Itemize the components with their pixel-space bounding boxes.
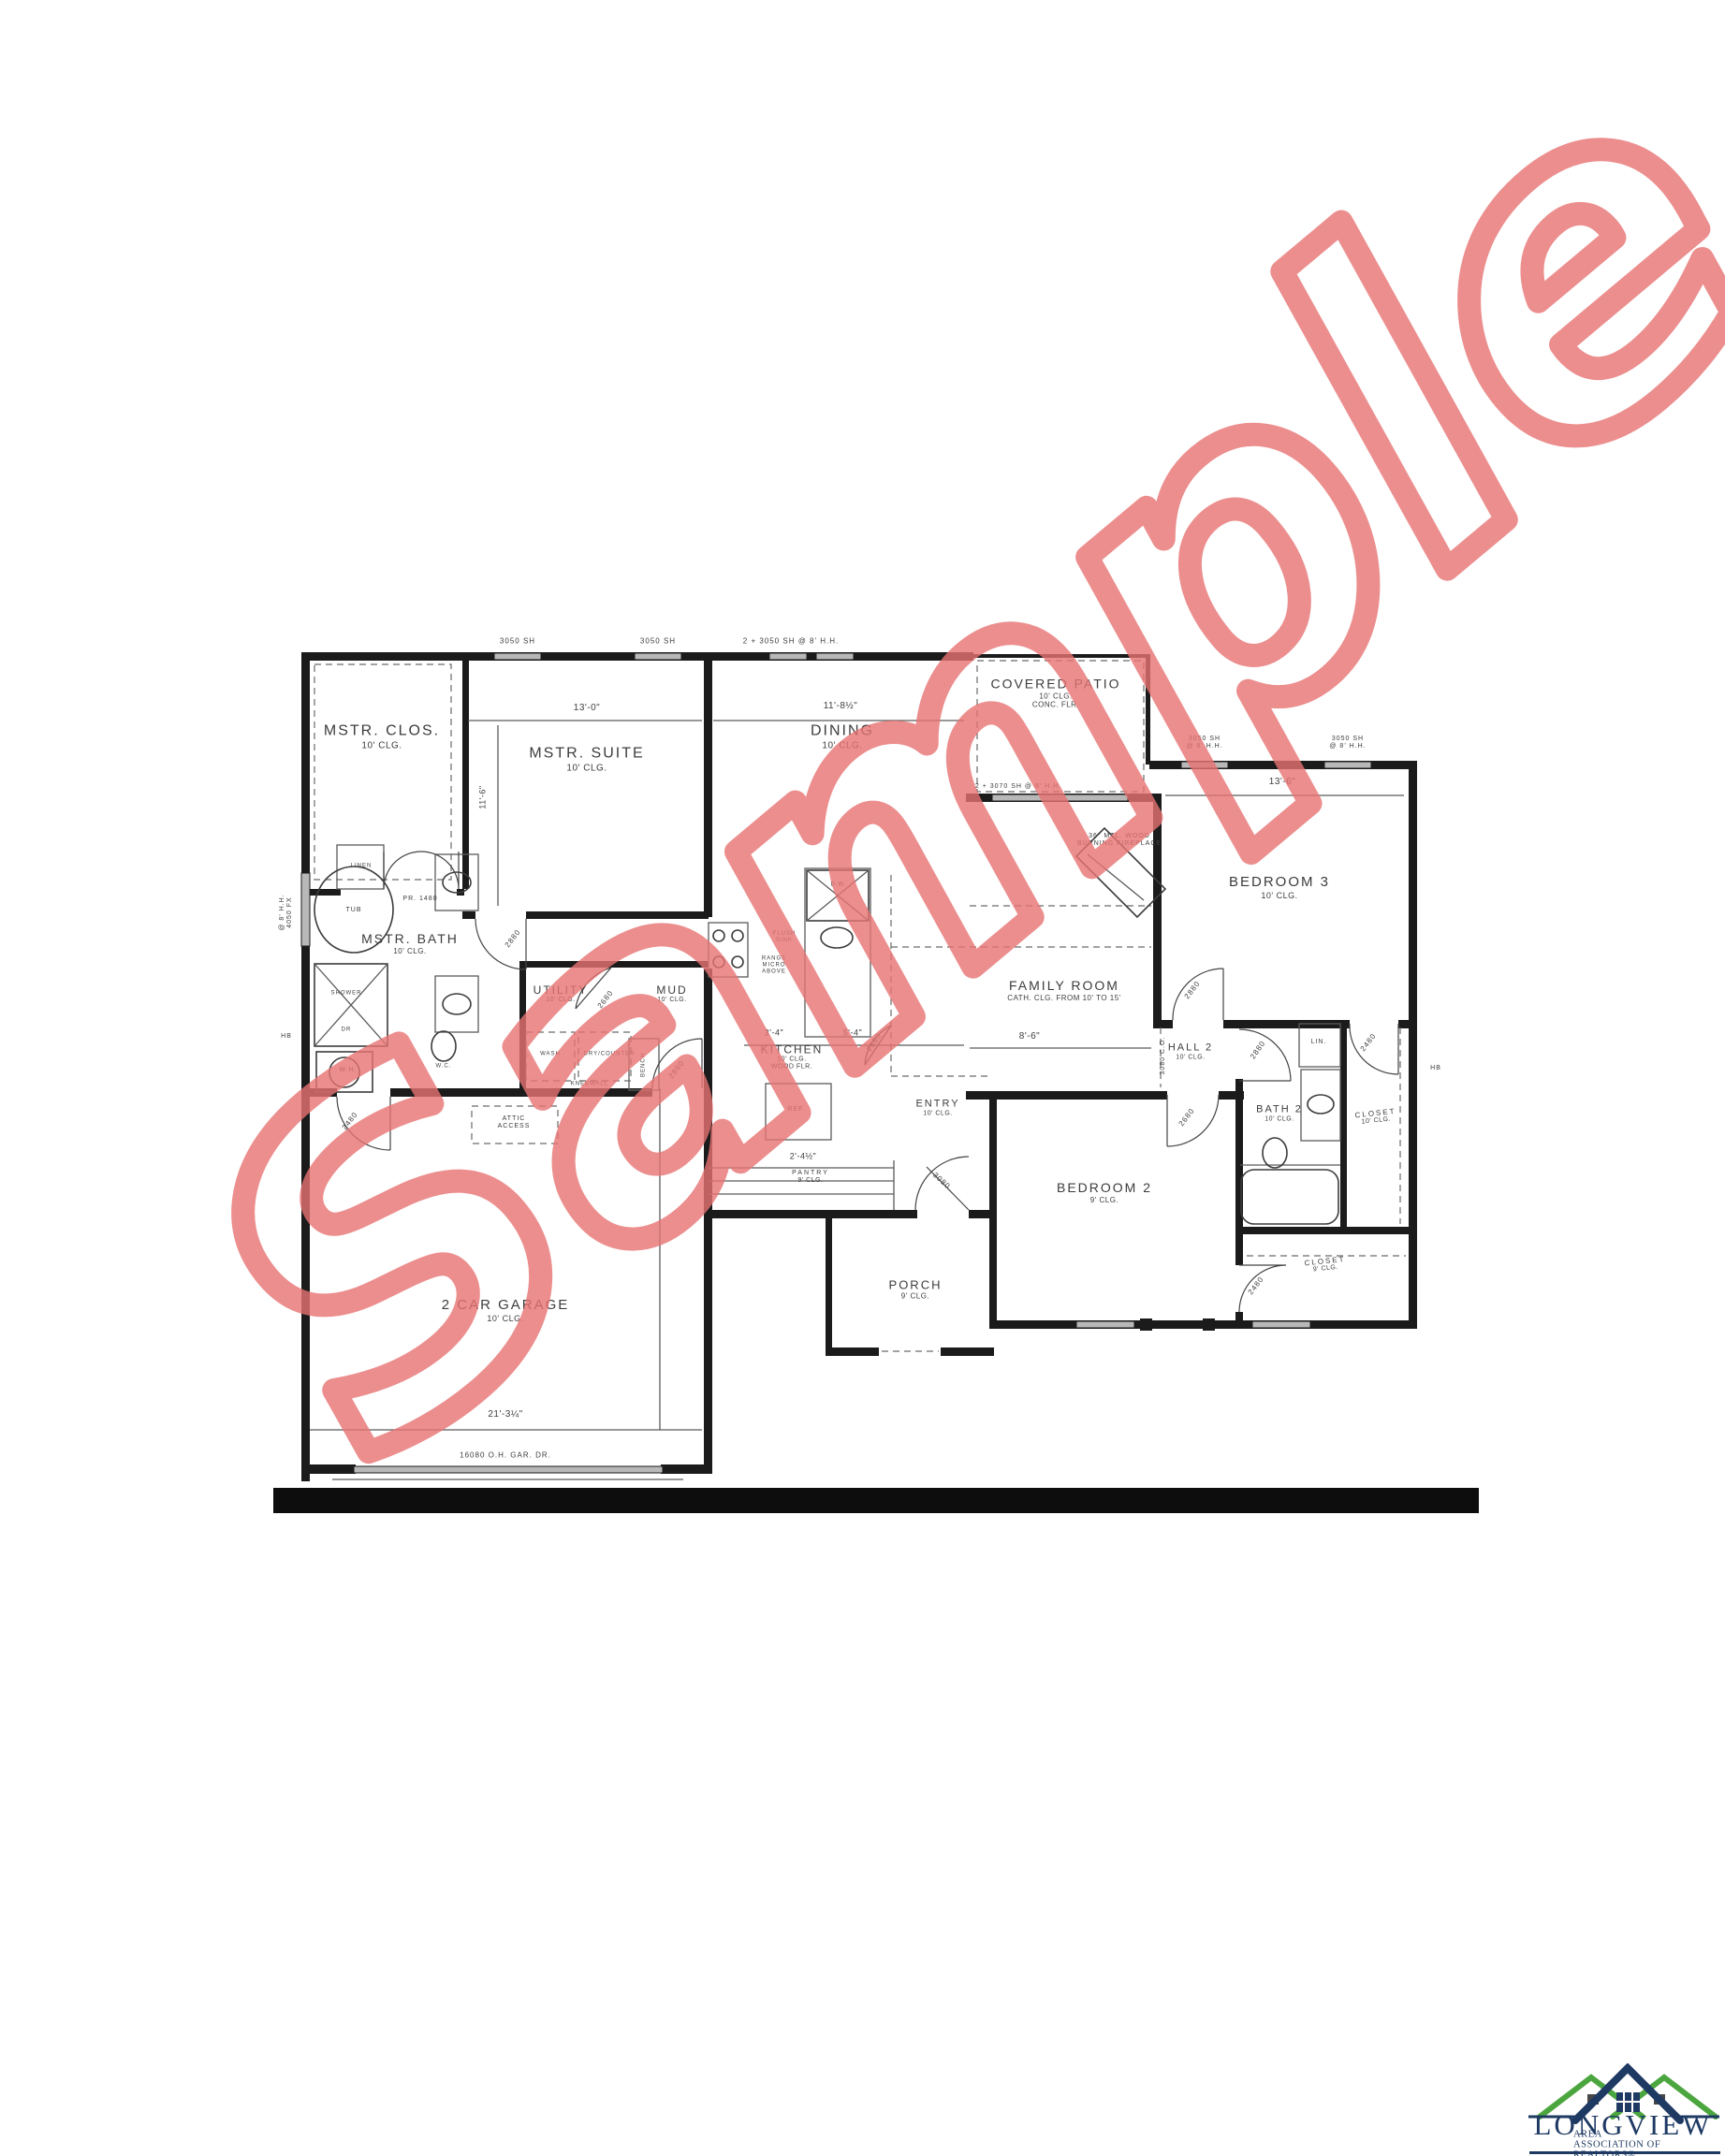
room-entry: ENTRY10' CLG. xyxy=(915,1098,959,1117)
room-mstr-clos: MSTR. CLOS.10' CLG. xyxy=(324,723,440,752)
washer: WASH xyxy=(540,1051,561,1057)
room-porch-sub: 9' CLG. xyxy=(889,1292,943,1301)
fireplace: 36" MTL. WOODBURNING FIREPLACE xyxy=(1077,833,1162,849)
window-dining-line: 2 + 3050 SH @ 8' H.H. xyxy=(743,636,839,645)
dim-pantry: 2'-4½" xyxy=(790,1152,816,1162)
room-utility-sub: 10' CLG. xyxy=(534,997,589,1004)
linen-bath2-line: LIN. xyxy=(1311,1039,1327,1046)
room-covered-patio-sub: CONC. FLR. xyxy=(990,700,1120,708)
room-covered-patio-sub: 10' CLG. xyxy=(990,692,1120,700)
range-micro: RANGEMICROABOVE xyxy=(762,955,786,975)
kneewall: KNEEWALL xyxy=(571,1081,608,1087)
attic-access: ATTICACCESS xyxy=(498,1115,531,1131)
shower-drain-line: DR xyxy=(342,1027,352,1033)
realtor-association-logo: LONGVIEW AREA ASSOCIATION OF REALTORS® xyxy=(1524,2063,1722,2156)
room-pantry-label: PANTRY xyxy=(792,1170,829,1177)
attic-access-line: ATTIC xyxy=(498,1115,531,1123)
window-mstr-bath-line: 4050 FX xyxy=(286,894,294,930)
room-garage-label: 2 CAR GARAGE xyxy=(442,1297,570,1314)
dryer-counter-line: DRY/COUNTER xyxy=(584,1051,636,1057)
window-bed3-b-line: @ 8' H.H. xyxy=(1329,743,1366,750)
dim-kitchen-b: 5'-4" xyxy=(843,1028,862,1039)
window-family: 2 + 3070 SH @ 8' H.H. xyxy=(975,783,1061,791)
room-dining-sub: 10' CLG. xyxy=(811,741,874,752)
shower: SHOWER xyxy=(331,990,362,997)
flush-sink-line: FLUSH xyxy=(773,931,797,938)
hose-bib-left: HB xyxy=(281,1033,292,1041)
room-mstr-suite-sub: 10' CLG. xyxy=(529,764,644,775)
room-bath-2: BATH 210' CLG. xyxy=(1256,1103,1303,1123)
room-mstr-bath: MSTR. BATH10' CLG. xyxy=(361,931,459,955)
room-mud-sub: 10' CLG. xyxy=(656,997,687,1004)
window-bed3-a-line: @ 8' H.H. xyxy=(1186,743,1222,750)
room-mstr-bath-sub: 10' CLG. xyxy=(361,947,459,955)
garage-door-label-line: 16080 O.H. GAR. DR. xyxy=(460,1450,551,1459)
room-bedroom-3-label: BEDROOM 3 xyxy=(1229,874,1330,891)
room-kitchen: KITCHEN10' CLG.WOOD FLR. xyxy=(761,1043,824,1072)
room-porch: PORCH9' CLG. xyxy=(889,1278,943,1302)
room-mud-label: MUD xyxy=(656,983,687,997)
hose-bib-right-line: HB xyxy=(1430,1065,1441,1072)
window-bed3-a: 3050 SH@ 8' H.H. xyxy=(1186,736,1222,751)
hose-bib-right: HB xyxy=(1430,1065,1441,1072)
room-mstr-suite-label: MSTR. SUITE xyxy=(529,746,644,764)
room-family: FAMILY ROOMCATH. CLG. FROM 10' TO 15' xyxy=(1007,978,1120,1002)
window-3050-suite-a-line: 3050 SH xyxy=(500,636,535,645)
room-dining: DINING10' CLG. xyxy=(811,723,874,752)
room-bedroom-2-label: BEDROOM 2 xyxy=(1057,1180,1152,1196)
room-dining-label: DINING xyxy=(811,723,874,741)
dim-family: 8'-6" xyxy=(1019,1031,1040,1042)
dim-mstr-suite: 13'-0" xyxy=(574,703,600,714)
room-kitchen-label: KITCHEN xyxy=(761,1043,824,1056)
room-utility: UTILITY10' CLG. xyxy=(534,983,589,1004)
water-heater: W.H. xyxy=(339,1067,357,1074)
room-mstr-clos-label: MSTR. CLOS. xyxy=(324,723,440,741)
water-closet-line: W.C. xyxy=(436,1063,452,1070)
fireplace-line: BURNING FIREPLACE xyxy=(1077,840,1162,848)
room-covered-patio: COVERED PATIO10' CLG.CONC. FLR. xyxy=(990,676,1120,708)
window-3050-suite-b-line: 3050 SH xyxy=(640,636,676,645)
room-covered-patio-label: COVERED PATIO xyxy=(990,676,1120,692)
room-bedroom-2-sub: 9' CLG. xyxy=(1057,1196,1152,1204)
attic-access-line: ACCESS xyxy=(498,1123,531,1130)
room-hall-2: HALL 210' CLG. xyxy=(1168,1042,1213,1061)
room-kitchen-sub: 10' CLG. xyxy=(761,1056,824,1064)
floor-plan-page: MSTR. CLOS.10' CLG.MSTR. SUITE10' CLG.DI… xyxy=(0,0,1725,2156)
shower-line: SHOWER xyxy=(331,990,362,997)
range-micro-line: MICRO xyxy=(762,962,786,969)
room-utility-label: UTILITY xyxy=(534,983,589,997)
dim-garage: 21'-3¼" xyxy=(488,1409,522,1420)
double-door-pr-1480: PR. 1480 xyxy=(402,896,437,903)
flush-sink-line: SINK xyxy=(773,938,797,944)
refrigerator: REF. xyxy=(787,1106,805,1114)
dishwasher-line: D.W. xyxy=(831,881,847,888)
linen-closet-line: LINEN xyxy=(351,863,373,869)
room-bedroom-3-sub: 10' CLG. xyxy=(1229,891,1330,901)
window-3050-suite-b: 3050 SH xyxy=(640,636,676,645)
room-hall-2-sub: 10' CLG. xyxy=(1168,1054,1213,1061)
room-kitchen-sub: WOOD FLR. xyxy=(761,1064,824,1071)
room-mud: MUD10' CLG. xyxy=(656,983,687,1004)
room-porch-label: PORCH xyxy=(889,1278,943,1292)
bench: BENCH xyxy=(640,1053,647,1077)
dishwasher: D.W. xyxy=(831,881,847,888)
room-mstr-clos-sub: 10' CLG. xyxy=(324,741,440,752)
footer-bar xyxy=(273,1488,1479,1513)
room-mstr-bath-label: MSTR. BATH xyxy=(361,931,459,947)
window-mstr-bath-line: @ 8' H.H. xyxy=(279,894,286,930)
tub-line: TUB xyxy=(346,907,362,914)
room-entry-sub: 10' CLG. xyxy=(915,1110,959,1117)
flush-sink: FLUSHSINK xyxy=(773,931,797,944)
range-micro-line: ABOVE xyxy=(762,969,786,976)
room-family-sub: CATH. CLG. FROM 10' TO 15' xyxy=(1007,994,1120,1002)
dim-mstr-suite-depth: 11'-6" xyxy=(478,785,489,808)
room-garage-sub: 10' CLG. xyxy=(442,1314,570,1324)
room-bath-2-label: BATH 2 xyxy=(1256,1103,1303,1115)
window-bed3-a-line: 3050 SH xyxy=(1186,736,1222,743)
floor-plan-drawing xyxy=(0,0,1725,2156)
hose-bib-left-line: HB xyxy=(281,1033,292,1041)
room-family-label: FAMILY ROOM xyxy=(1007,978,1120,994)
fireplace-line: 36" MTL. WOOD xyxy=(1077,833,1162,840)
linen-closet: LINEN xyxy=(351,863,373,869)
room-bath-2-sub: 10' CLG. xyxy=(1256,1115,1303,1123)
range-micro-line: RANGE xyxy=(762,955,786,962)
dim-dining: 11'-8½" xyxy=(824,701,858,712)
room-hall-2-label: HALL 2 xyxy=(1168,1042,1213,1054)
room-bedroom-3: BEDROOM 310' CLG. xyxy=(1229,874,1330,900)
shower-drain: DR xyxy=(342,1027,352,1033)
logo-underline xyxy=(1529,2151,1720,2154)
window-family-line: 2 + 3070 SH @ 8' H.H. xyxy=(975,783,1061,791)
cased-opening: 3080 C.O. xyxy=(1160,1037,1167,1075)
fixtures xyxy=(314,828,1338,1224)
bench-line: BENCH xyxy=(640,1053,647,1077)
window-bed3-b: 3050 SH@ 8' H.H. xyxy=(1329,736,1366,751)
room-garage: 2 CAR GARAGE10' CLG. xyxy=(442,1297,570,1323)
kneewall-line: KNEEWALL xyxy=(571,1081,608,1087)
room-mstr-suite: MSTR. SUITE10' CLG. xyxy=(529,746,644,775)
double-door-pr-1480-line: PR. 1480 xyxy=(402,896,437,903)
walls xyxy=(301,652,1417,1481)
water-heater-line: W.H. xyxy=(339,1067,357,1074)
tub: TUB xyxy=(346,907,362,914)
room-bedroom-2: BEDROOM 29' CLG. xyxy=(1057,1180,1152,1204)
window-mstr-bath: @ 8' H.H.4050 FX xyxy=(279,894,295,930)
linen-bath2: LIN. xyxy=(1311,1039,1327,1046)
dryer-counter: DRY/COUNTER xyxy=(584,1051,636,1057)
room-pantry: PANTRY9' CLG. xyxy=(792,1170,829,1186)
dim-bedroom-3: 13'-6" xyxy=(1269,777,1295,788)
window-3050-suite-a: 3050 SH xyxy=(500,636,535,645)
dim-kitchen-a: 3'-4" xyxy=(765,1028,783,1039)
window-bed3-b-line: 3050 SH xyxy=(1329,736,1366,743)
window-dining: 2 + 3050 SH @ 8' H.H. xyxy=(743,636,839,645)
refrigerator-line: REF. xyxy=(787,1106,805,1114)
room-pantry-sub: 9' CLG. xyxy=(792,1177,829,1185)
washer-line: WASH xyxy=(540,1051,561,1057)
water-closet: W.C. xyxy=(436,1063,452,1070)
garage-door-label: 16080 O.H. GAR. DR. xyxy=(460,1450,551,1459)
room-entry-label: ENTRY xyxy=(915,1098,959,1110)
cased-opening-line: 3080 C.O. xyxy=(1160,1037,1167,1075)
